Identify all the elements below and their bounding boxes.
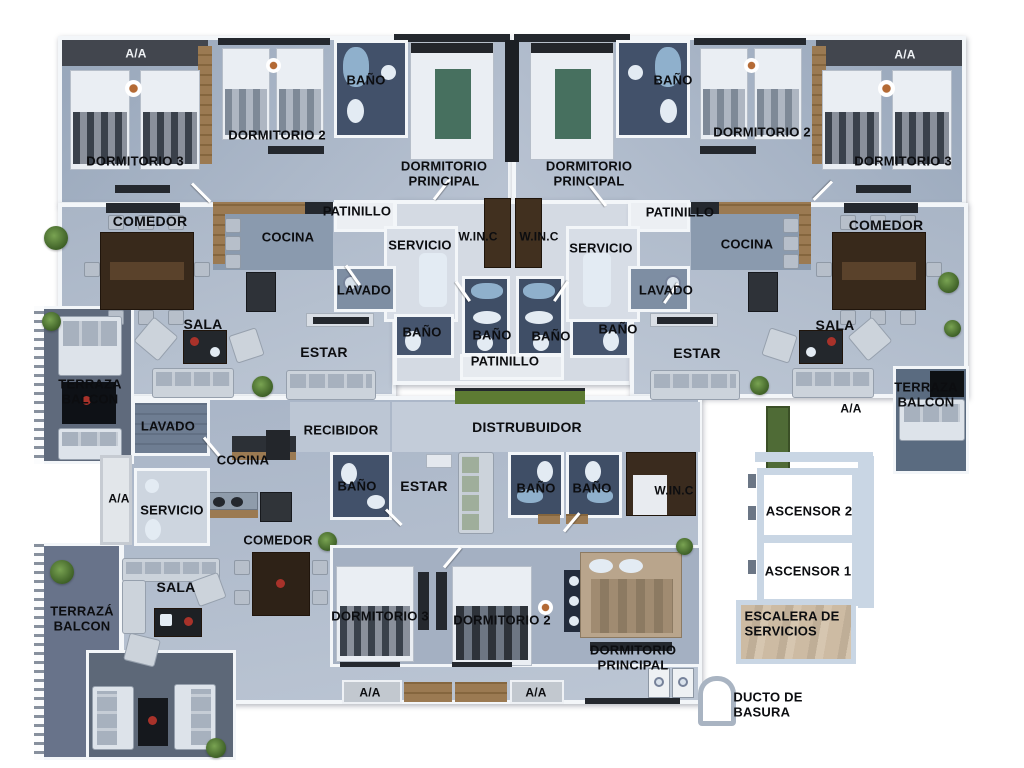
label-estar-right: ESTAR: [673, 346, 720, 362]
window-strip-principal-left: [394, 34, 510, 42]
plant: [252, 376, 273, 397]
core-right-wall: [858, 456, 874, 608]
label-dormitorio3-top-right: DORMITORIO 3: [854, 155, 952, 170]
dining-table-right: [832, 232, 926, 310]
plant: [42, 312, 61, 331]
dining-table-left: [100, 232, 194, 310]
coffee-table-right: [799, 330, 843, 364]
window-strip: [585, 698, 680, 704]
bathroom-center-left: [462, 276, 510, 356]
ac-strip-top-right: [816, 40, 962, 66]
label-dormitorio2-top-left: DORMITORIO 2: [228, 129, 326, 144]
window-strip-dorm2-right: [694, 38, 806, 45]
label-cocina-apt3: COCINA: [217, 454, 269, 469]
label-dormitorio3-top-left: DORMITORIO 3: [86, 155, 184, 170]
bed: [276, 48, 324, 140]
bed-principal-left: [410, 42, 494, 160]
kitchen-apt3-lower-counter: [208, 510, 258, 518]
sofa-estar-right: [650, 370, 740, 400]
hedge-strip: [766, 406, 790, 474]
wood-sill: [455, 682, 507, 702]
label-bano-center-left: BAÑO: [472, 329, 511, 344]
fridge-left: [246, 272, 276, 312]
label-dormitorio2-top-right: DORMITORIO 2: [713, 126, 811, 141]
door-sill: [538, 514, 560, 524]
label-terraza-balcon-right: TERRAZA BALCON: [894, 380, 958, 409]
label-cocina-left: COCINA: [262, 231, 314, 246]
dresser: [856, 185, 911, 193]
nightstand: [744, 58, 759, 73]
buffet-right: [844, 203, 918, 213]
dresser: [700, 146, 756, 154]
kitchen-apt3-cabinet: [266, 430, 290, 460]
label-ducto-basura: DUCTO DE BASURA: [733, 690, 802, 719]
label-distribuidor: DISTRUBUIDOR: [472, 420, 582, 436]
label-winc-top-right: W.IN.C: [519, 230, 558, 243]
buffet-left: [106, 203, 180, 213]
label-lavado-apt3: LAVADO: [141, 420, 195, 435]
bed-principal-right: [530, 42, 614, 160]
sofa-sala-left: [152, 368, 234, 398]
headboard-divider-wall: [505, 40, 519, 162]
grass-strip: [455, 388, 585, 404]
fridge-apt3: [260, 492, 292, 522]
bed: [222, 48, 270, 140]
label-aa-top-left: A/A: [125, 47, 146, 60]
label-patinillo-bottom-center: PATINILLO: [471, 355, 539, 370]
label-bano-apt3-mid1: BAÑO: [516, 482, 555, 497]
fridge-right: [748, 272, 778, 312]
label-escalera-servicios: ESCALERA DE SERVICIOS: [745, 609, 840, 638]
window-strip-dorm2-left: [218, 38, 330, 45]
label-lavado-left: LAVADO: [337, 284, 391, 299]
balcony-railing-top: [34, 306, 44, 464]
label-terraza-balcon-bottom: TERRAZÁ BALCON: [50, 604, 114, 633]
console-estar-apt3: [426, 454, 452, 468]
label-lavado-right: LAVADO: [639, 284, 693, 299]
label-ascensor2: ASCENSOR 2: [766, 505, 853, 520]
label-sala-apt3: SALA: [157, 580, 196, 596]
label-bano-apt3-mid2: BAÑO: [572, 482, 611, 497]
label-bano-apt3-left: BAÑO: [337, 480, 376, 495]
ducto-arch: [698, 676, 736, 726]
label-servicio-apt3: SERVICIO: [140, 504, 204, 519]
plant: [50, 560, 74, 584]
label-comedor-left: COMEDOR: [113, 214, 188, 230]
tv-console-right: [650, 313, 718, 327]
label-dormitorio-principal-top-left: DORMITORIO PRINCIPAL: [401, 159, 487, 188]
core-notch: [748, 506, 756, 520]
label-winc-top-left: W.IN.C: [458, 230, 497, 243]
label-dormitorio-principal-top-right: DORMITORIO PRINCIPAL: [546, 159, 632, 188]
label-bano-top-left: BAÑO: [346, 74, 385, 89]
coffee-table-apt3: [154, 608, 202, 637]
label-servicio-left: SERVICIO: [388, 239, 452, 254]
label-bano-center-right: BAÑO: [531, 330, 570, 345]
label-ascensor1: ASCENSOR 1: [765, 565, 852, 580]
label-patinillo-top-right: PATINILLO: [646, 206, 714, 221]
dresser: [268, 146, 324, 154]
bathroom-top-right: [616, 40, 690, 138]
label-aa-apt3-bottom1: A/A: [359, 686, 380, 699]
plant: [938, 272, 959, 293]
closet-strip-left: [198, 46, 212, 164]
label-sala-right: SALA: [816, 318, 855, 334]
bed-principal-apt3: [580, 552, 682, 638]
label-servicio-right: SERVICIO: [569, 242, 633, 257]
label-aa-apt3-left: A/A: [108, 492, 129, 505]
nightstand: [878, 80, 895, 97]
plant: [676, 538, 693, 555]
nightstand: [125, 80, 142, 97]
terrace-sofa: [58, 316, 122, 376]
dining-table-apt3: [252, 552, 310, 616]
label-terraza-balcon-left: TERRAZA BALCON: [58, 377, 122, 406]
nightstand: [266, 58, 281, 73]
label-bano-top-right: BAÑO: [653, 74, 692, 89]
label-cocina-right: COCINA: [721, 238, 773, 253]
label-aa-mid-right: A/A: [840, 402, 861, 415]
terrace-table-bottom: [138, 698, 168, 746]
window-strip-principal-right: [514, 34, 630, 42]
label-comedor-apt3: COMEDOR: [243, 534, 312, 549]
core-top-wall: [755, 452, 873, 462]
sofa-sala-apt3-side: [122, 580, 146, 634]
coffee-table-left: [183, 330, 227, 364]
label-bano-mid-left: BAÑO: [402, 326, 441, 341]
label-dormitorio2-apt3: DORMITORIO 2: [453, 614, 551, 629]
label-recibidor: RECIBIDOR: [304, 424, 379, 439]
label-aa-top-right: A/A: [894, 48, 915, 61]
label-sala-left: SALA: [184, 317, 223, 333]
sofa-sala-right: [792, 368, 874, 398]
window-strip: [340, 662, 400, 667]
core-notch: [748, 560, 756, 574]
label-estar-apt3: ESTAR: [400, 479, 447, 495]
plant: [750, 376, 769, 395]
terrace-sofa-bottom: [92, 686, 134, 750]
label-dormitorio3-apt3: DORMITORIO 3: [331, 610, 429, 625]
sofa-estar-apt3: [458, 452, 494, 534]
tv-console-left: [306, 313, 374, 327]
label-bano-mid-right: BAÑO: [598, 323, 637, 338]
label-estar-left: ESTAR: [300, 345, 347, 361]
bathroom-top-left: [334, 40, 408, 138]
sofa-estar-left: [286, 370, 376, 400]
label-comedor-right: COMEDOR: [849, 218, 924, 234]
closet-slit: [436, 572, 447, 630]
plant: [206, 738, 226, 758]
window-strip: [452, 662, 512, 667]
label-dormitorio-principal-apt3: DORMITORIO PRINCIPAL: [590, 643, 676, 672]
kitchen-apt3-lower: [208, 492, 258, 510]
label-aa-apt3-bottom2: A/A: [525, 686, 546, 699]
label-winc-apt3: W.IN.C: [654, 484, 693, 497]
plant: [944, 320, 961, 337]
plant: [44, 226, 68, 250]
wood-sill: [404, 682, 452, 702]
core-notch: [748, 474, 756, 488]
balcony-railing-bottom: [34, 543, 44, 760]
dresser: [115, 185, 170, 193]
label-patinillo-top-left: PATINILLO: [323, 205, 391, 220]
floor-plan: A/ADORMITORIO 3DORMITORIO 2BAÑODORMITORI…: [0, 0, 1024, 768]
